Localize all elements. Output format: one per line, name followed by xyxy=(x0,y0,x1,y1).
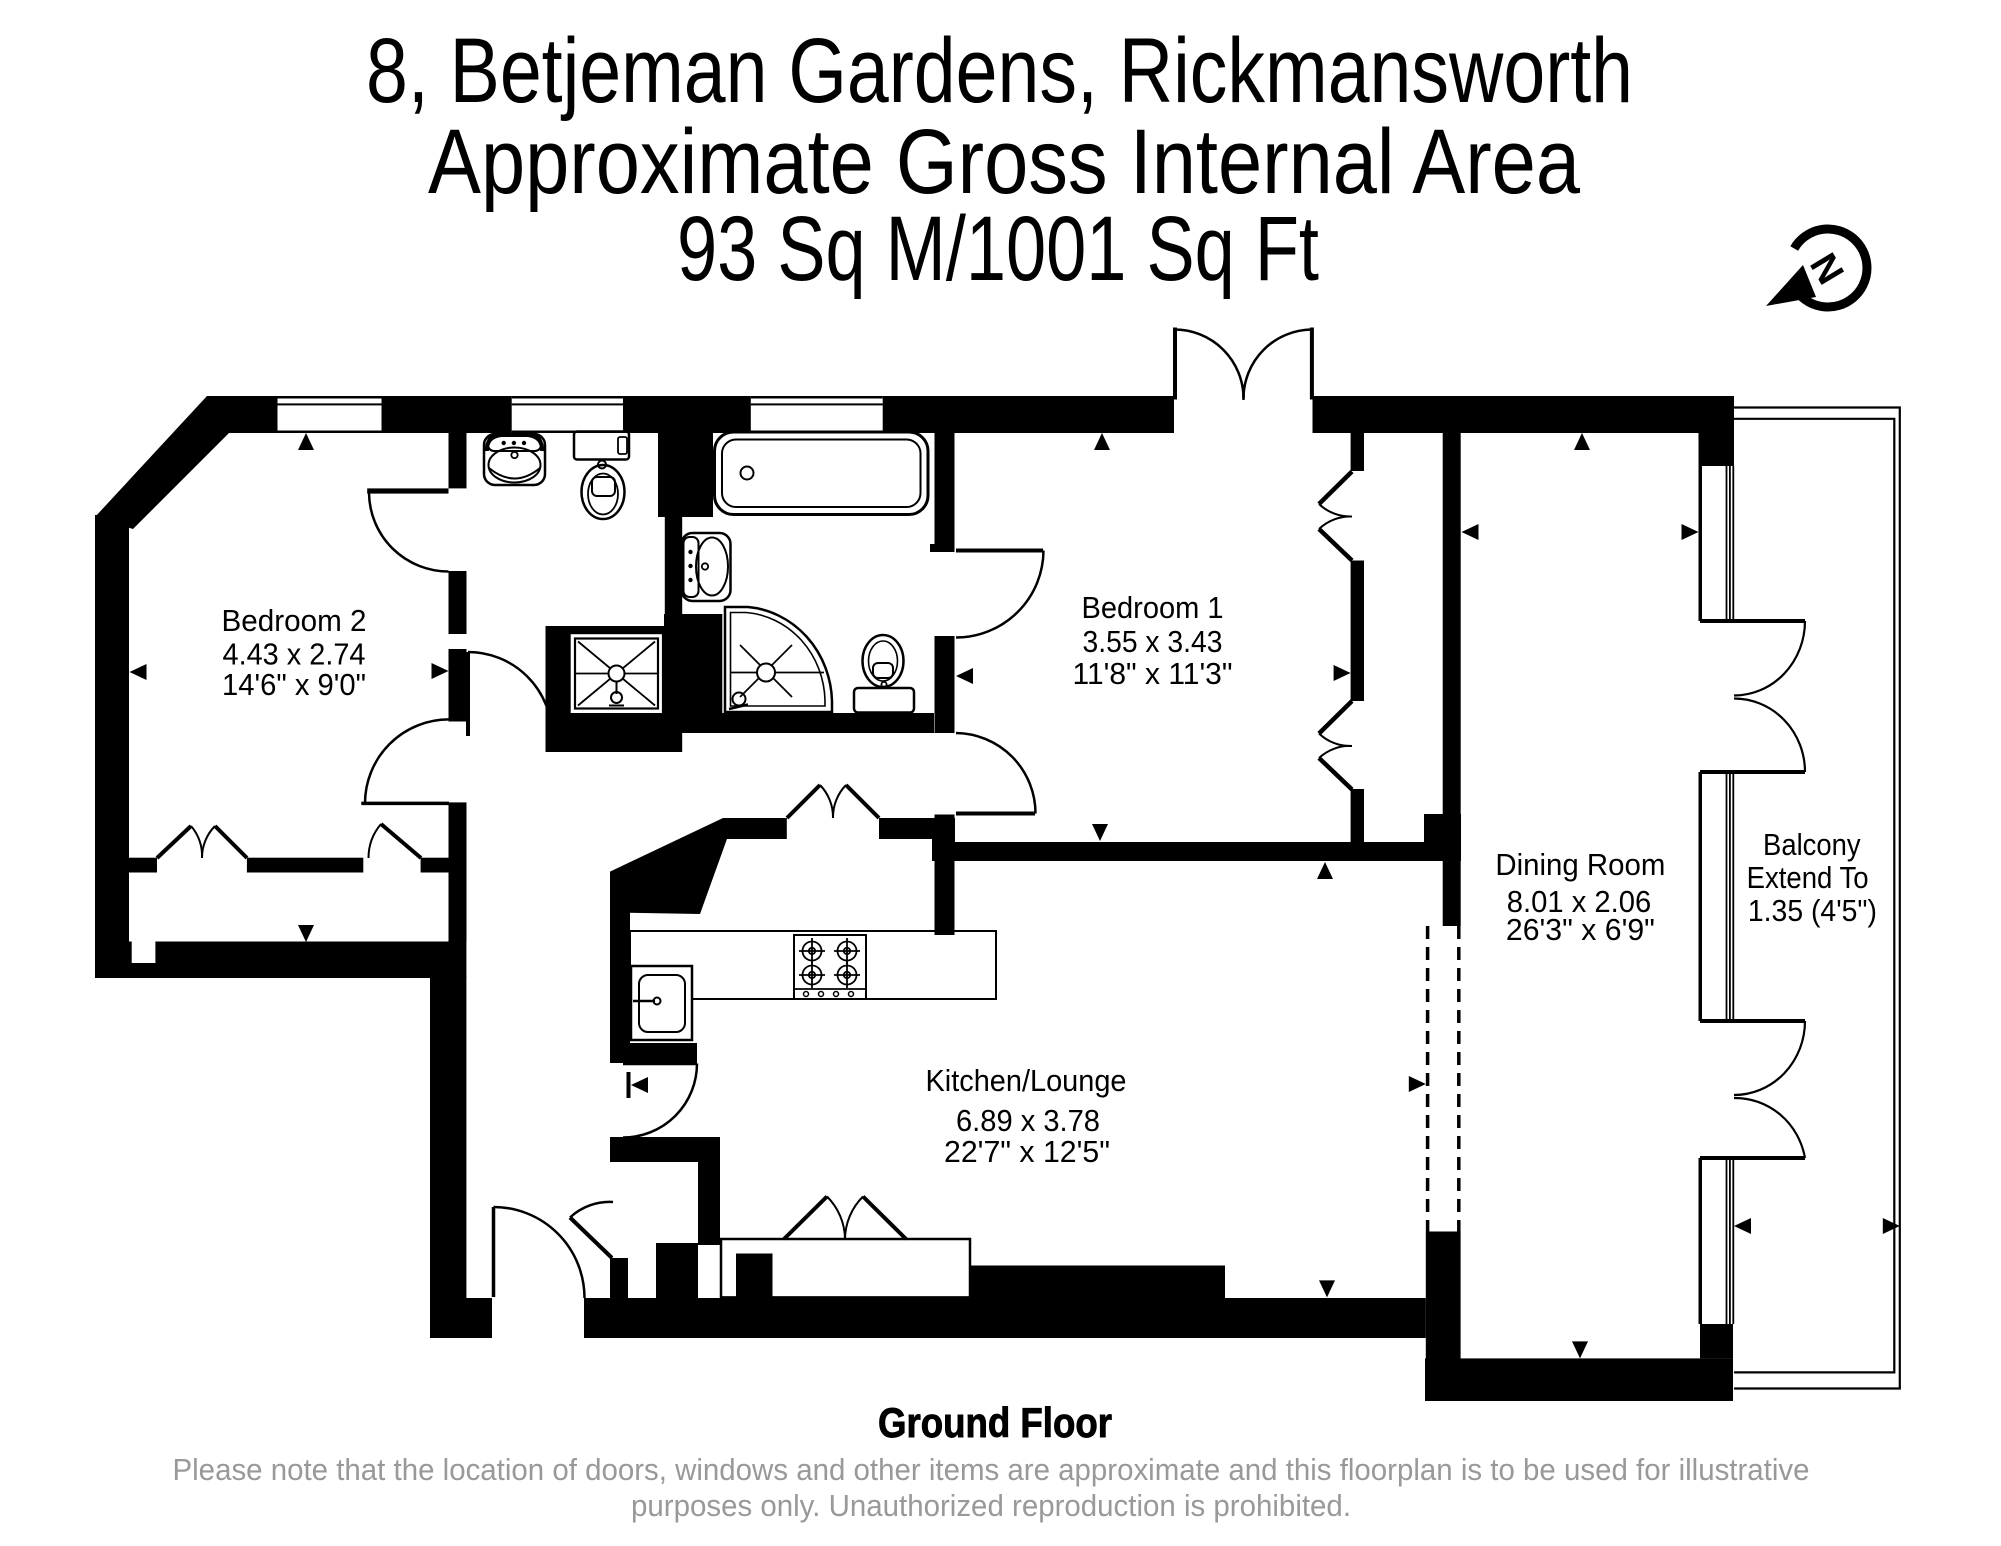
svg-text:purposes only. Unauthorized re: purposes only. Unauthorized reproduction… xyxy=(631,1488,1351,1523)
svg-text:3.55 x 3.43: 3.55 x 3.43 xyxy=(1083,624,1223,659)
svg-text:14'6" x 9'0": 14'6" x 9'0" xyxy=(222,667,366,702)
svg-text:Please note that the location: Please note that the location of doors, … xyxy=(173,1452,1810,1487)
svg-text:22'7" x 12'5": 22'7" x 12'5" xyxy=(944,1134,1110,1169)
svg-text:1.35 (4'5"): 1.35 (4'5") xyxy=(1748,893,1877,928)
svg-text:Ground Floor: Ground Floor xyxy=(878,1399,1112,1446)
svg-text:Bedroom 1: Bedroom 1 xyxy=(1082,590,1224,625)
svg-text:6.89 x 3.78: 6.89 x 3.78 xyxy=(956,1103,1100,1138)
svg-text:8, Betjeman Gardens, Rickmansw: 8, Betjeman Gardens, Rickmansworth xyxy=(366,20,1633,122)
svg-text:11'8" x 11'3": 11'8" x 11'3" xyxy=(1073,656,1233,691)
svg-text:Dining Room: Dining Room xyxy=(1495,847,1665,882)
svg-text:Bedroom 2: Bedroom 2 xyxy=(222,603,367,638)
svg-text:26'3" x 6'9": 26'3" x 6'9" xyxy=(1506,912,1655,947)
svg-text:Extend To: Extend To xyxy=(1747,860,1869,895)
svg-text:Balcony: Balcony xyxy=(1763,827,1861,862)
svg-text:Kitchen/Lounge: Kitchen/Lounge xyxy=(926,1063,1127,1098)
svg-text:93 Sq M/1001 Sq Ft: 93 Sq M/1001 Sq Ft xyxy=(677,198,1319,300)
